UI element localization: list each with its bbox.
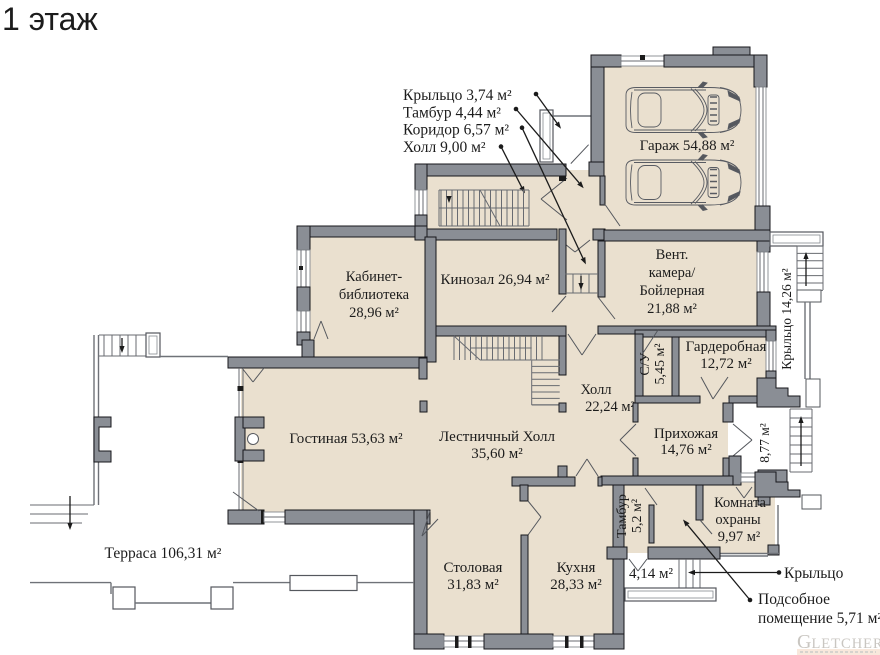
svg-text:С/У: С/У [638, 352, 653, 375]
svg-text:Прихожая: Прихожая [654, 426, 718, 442]
svg-text:Подсобное: Подсобное [758, 591, 830, 608]
svg-text:Гардеробная: Гардеробная [686, 339, 767, 355]
svg-text:8,77 м²: 8,77 м² [757, 423, 772, 463]
svg-text:Тамбур 4,44 м²: Тамбур 4,44 м² [403, 105, 501, 122]
svg-text:Холл: Холл [580, 382, 611, 398]
svg-text:28,96 м²: 28,96 м² [349, 305, 399, 321]
svg-text:камера/: камера/ [649, 265, 697, 281]
svg-text:Кабинет-: Кабинет- [346, 269, 403, 285]
svg-text:4,14 м²: 4,14 м² [629, 566, 673, 582]
svg-text:Кухня: Кухня [557, 560, 596, 576]
svg-text:9,97 м²: 9,97 м² [718, 529, 761, 545]
svg-text:1 этаж: 1 этаж [2, 1, 98, 37]
svg-text:Бойлерная: Бойлерная [639, 283, 704, 299]
svg-text:GLETCHER®: GLETCHER® [797, 631, 880, 653]
svg-text:Кинозал 26,94 м²: Кинозал 26,94 м² [441, 272, 551, 288]
svg-text:28,33 м²: 28,33 м² [550, 577, 602, 593]
svg-text:Коридор 6,57 м²: Коридор 6,57 м² [403, 122, 509, 139]
svg-text:Вент.: Вент. [656, 247, 689, 263]
svg-text:помещение 5,71 м²: помещение 5,71 м² [758, 610, 880, 627]
svg-text:Столовая: Столовая [444, 560, 503, 576]
svg-text:22,24 м²: 22,24 м² [585, 399, 635, 415]
svg-text:Крыльцо: Крыльцо [784, 565, 844, 582]
svg-text:Терраса 106,31 м²: Терраса 106,31 м² [105, 545, 222, 562]
svg-text:Гараж 54,88 м²: Гараж 54,88 м² [640, 138, 735, 154]
svg-text:5,2 м²: 5,2 м² [630, 499, 645, 533]
svg-text:Тамбур: Тамбур [615, 494, 630, 538]
svg-text:12,72 м²: 12,72 м² [700, 356, 752, 372]
svg-text:35,60 м²: 35,60 м² [471, 446, 523, 462]
svg-text:Гостиная 53,63 м²: Гостиная 53,63 м² [289, 431, 403, 447]
svg-text:31,83 м²: 31,83 м² [447, 577, 499, 593]
svg-text:14,76 м²: 14,76 м² [660, 442, 712, 458]
svg-text:Холл 9,00 м²: Холл 9,00 м² [403, 139, 486, 156]
svg-text:библиотека: библиотека [339, 287, 410, 303]
svg-text:Крыльцо 3,74 м²: Крыльцо 3,74 м² [403, 87, 512, 104]
svg-text:21,88 м²: 21,88 м² [647, 301, 697, 317]
svg-text:5,45 м²: 5,45 м² [653, 343, 668, 384]
svg-text:Крыльцо 14,26 м²: Крыльцо 14,26 м² [779, 268, 794, 369]
svg-text:Лестничный Холл: Лестничный Холл [439, 429, 555, 445]
svg-text:охраны: охраны [715, 512, 761, 528]
